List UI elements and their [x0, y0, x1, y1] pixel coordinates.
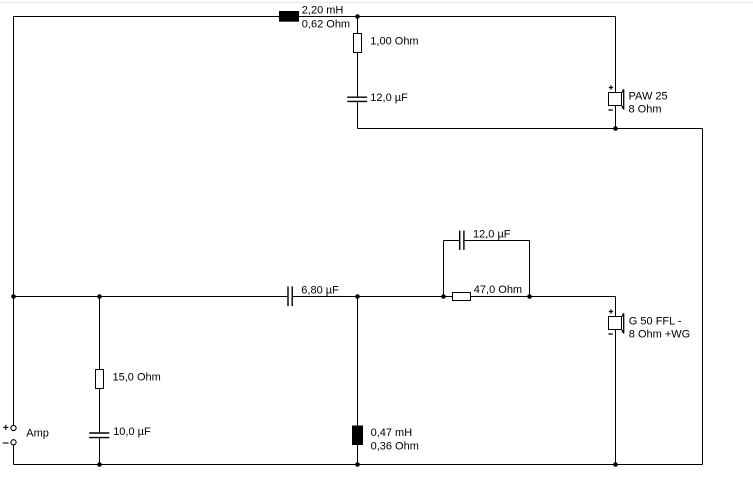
svg-text:12,0 µF: 12,0 µF [473, 228, 511, 240]
svg-text:PAW 25: PAW 25 [629, 90, 668, 102]
svg-text:G 50 FFL -: G 50 FFL - [629, 316, 682, 328]
svg-text:2,20 mH: 2,20 mH [302, 4, 344, 16]
svg-text:47,0 Ohm: 47,0 Ohm [474, 284, 522, 296]
svg-text:15,0 Ohm: 15,0 Ohm [113, 371, 161, 383]
svg-text:1,00 Ohm: 1,00 Ohm [370, 35, 418, 47]
svg-text:Amp: Amp [26, 427, 49, 439]
svg-text:0,47 mH: 0,47 mH [371, 427, 413, 439]
svg-text:0,36 Ohm: 0,36 Ohm [371, 440, 419, 452]
svg-text:10,0 µF: 10,0 µF [113, 426, 151, 438]
svg-text:12,0 µF: 12,0 µF [370, 92, 408, 104]
svg-text:8 Ohm: 8 Ohm [629, 103, 662, 115]
svg-text:0,62 Ohm: 0,62 Ohm [302, 19, 350, 31]
svg-text:8 Ohm +WG: 8 Ohm +WG [629, 329, 690, 341]
svg-text:6,80 µF: 6,80 µF [301, 285, 339, 297]
